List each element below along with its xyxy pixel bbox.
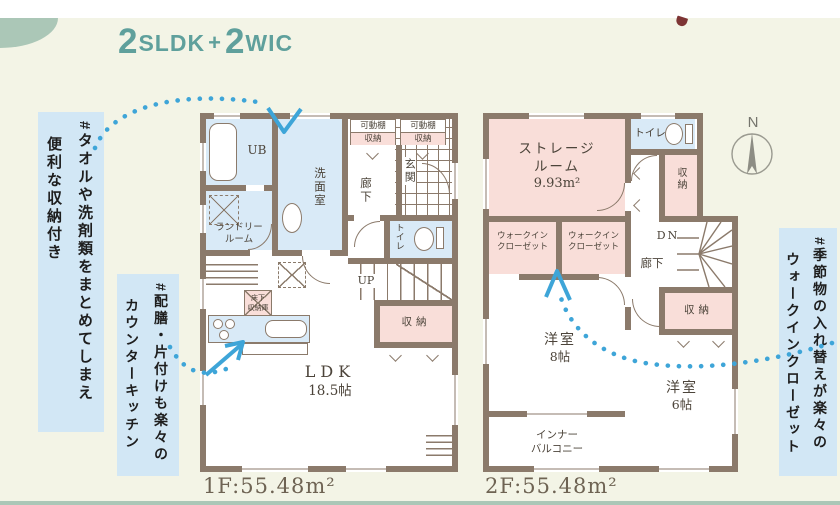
label-line: ストレージ bbox=[507, 141, 607, 159]
note-counter-kitchen: #配膳・片付けも楽々の カウンターキッチン bbox=[117, 274, 179, 476]
closet-mark bbox=[389, 349, 402, 362]
title-number: 2 bbox=[118, 22, 138, 61]
toilet-bowl-icon bbox=[665, 123, 683, 145]
window-marker bbox=[214, 113, 240, 119]
counter-front-panel bbox=[242, 343, 308, 355]
room-label-toilet: トイレ bbox=[392, 223, 404, 250]
closet-mark bbox=[366, 147, 379, 160]
label-line: バルコニー bbox=[517, 443, 597, 457]
room-label-closet-upper: 収納 bbox=[674, 167, 687, 191]
toilet-tank-icon bbox=[436, 227, 444, 249]
window-marker bbox=[534, 466, 599, 472]
note-line: #配膳・片付けも楽々の bbox=[146, 283, 175, 467]
door-arc bbox=[597, 277, 625, 305]
window-marker bbox=[732, 389, 738, 434]
shelf-label: 収納 bbox=[351, 133, 395, 145]
washer-icon bbox=[209, 195, 239, 225]
plus-sign: + bbox=[205, 30, 225, 55]
wall bbox=[659, 287, 732, 293]
door-arc bbox=[631, 155, 657, 181]
door-arc bbox=[354, 221, 380, 247]
label-line: 洋室 bbox=[642, 379, 722, 397]
shelf-label: 可動棚 bbox=[351, 120, 395, 133]
floor1-area-label: 1F:55.48m² bbox=[203, 474, 336, 498]
door-mark bbox=[633, 199, 646, 212]
room-label-laundry: ランドリー ルーム bbox=[206, 222, 272, 247]
sink-icon bbox=[282, 203, 302, 233]
bathtub-icon bbox=[209, 123, 237, 181]
label-line: 6帖 bbox=[642, 397, 722, 413]
room-label-wic-2: ウォークイン クローゼット bbox=[562, 231, 625, 253]
label-line: LDK bbox=[284, 362, 376, 383]
title-number-2: 2 bbox=[225, 22, 245, 61]
closet-mark bbox=[712, 335, 725, 348]
label-line: 洋室 bbox=[520, 331, 600, 349]
door-arc bbox=[632, 299, 660, 327]
window-marker bbox=[483, 319, 489, 364]
door-gap bbox=[250, 250, 272, 256]
stove-burner-icon bbox=[219, 330, 229, 340]
wall bbox=[272, 119, 278, 256]
compass-north-label: N bbox=[744, 114, 762, 131]
stairs-up-label: UP bbox=[352, 274, 380, 288]
window-marker bbox=[659, 466, 709, 472]
window-marker bbox=[527, 411, 587, 417]
decor-bottom-strip bbox=[0, 501, 840, 505]
room-label-room6: 洋室 6帖 bbox=[642, 379, 722, 413]
note-line: ウォークインクローゼット bbox=[779, 237, 806, 467]
window-marker bbox=[529, 113, 584, 119]
wall bbox=[625, 222, 631, 330]
toilet-tank-icon bbox=[685, 124, 693, 144]
label-line: ウォークイン bbox=[489, 231, 556, 242]
note-laundry-storage: #タオルや洗剤類をまとめてしまえ 便利な収納付き bbox=[38, 112, 104, 432]
shelf-label: 収納 bbox=[401, 133, 445, 145]
wall bbox=[659, 329, 732, 335]
label-line: 18.5帖 bbox=[284, 383, 376, 401]
wall bbox=[374, 300, 452, 306]
label-line: インナー bbox=[517, 429, 597, 443]
shelf-storage-box: 可動棚 収納 bbox=[400, 119, 446, 145]
title-unit-2: WIC bbox=[245, 30, 293, 56]
wall bbox=[374, 342, 452, 348]
closet-mark bbox=[677, 335, 690, 348]
label-line: 床下 bbox=[245, 293, 271, 303]
room-label-hall-2f: 廊下 bbox=[635, 256, 669, 271]
window-marker bbox=[242, 466, 308, 472]
label-line: ランドリー bbox=[206, 222, 272, 234]
room-label-toilet-2f: トイレ bbox=[634, 127, 666, 141]
room-label-ldk: LDK 18.5帖 bbox=[284, 362, 376, 400]
wall bbox=[659, 155, 665, 216]
page-title: 2SLDK+2WIC bbox=[118, 22, 293, 62]
label-line: ウォークイン bbox=[562, 231, 625, 242]
room-label-closet-lower: 収納 bbox=[665, 304, 732, 318]
shelf-storage-box: 可動棚 収納 bbox=[350, 119, 396, 145]
room-label-storage: 収納 bbox=[380, 316, 452, 330]
kitchen-counter bbox=[208, 315, 310, 343]
label-line: クローゼット bbox=[489, 242, 556, 253]
floor-plan-2f: ストレージ ルーム 9.93m² トイレ 収納 ウォークイン クローゼット ウォ… bbox=[483, 113, 738, 472]
note-line: カウンターキッチン bbox=[117, 283, 146, 467]
louver-lines bbox=[206, 264, 258, 290]
louver-lines bbox=[426, 435, 452, 461]
stairs-diagonal bbox=[396, 264, 452, 300]
room-label-room8: 洋室 8帖 bbox=[520, 331, 600, 365]
stove-burner-icon bbox=[213, 319, 223, 329]
kitchen-sink-icon bbox=[265, 320, 307, 338]
window-marker bbox=[200, 279, 206, 309]
label-line: 8帖 bbox=[520, 349, 600, 365]
room-label-ub: UB bbox=[242, 143, 272, 159]
label-line: 収納庫 bbox=[245, 303, 271, 313]
window-marker bbox=[452, 375, 458, 425]
refrigerator-space-icon bbox=[278, 262, 306, 288]
room-label-senmen: 洗面室 bbox=[312, 167, 327, 208]
floor-storage-label: 床下 収納庫 bbox=[245, 293, 271, 313]
room-label-balcony: インナー バルコニー bbox=[517, 429, 597, 456]
shelf-label: 可動棚 bbox=[401, 120, 445, 133]
door-gap bbox=[625, 183, 631, 211]
label-line: 9.93m² bbox=[507, 176, 607, 193]
compass-icon bbox=[727, 130, 777, 180]
wall bbox=[519, 274, 599, 280]
room-label-genkan: 玄関 bbox=[402, 157, 416, 185]
room-label-hall: 廊下 bbox=[358, 177, 373, 204]
stove-burner-icon bbox=[225, 319, 235, 329]
note-walk-in-closet: #季節物の入れ替えが楽々の ウォークインクローゼット bbox=[779, 228, 837, 476]
window-marker bbox=[641, 113, 675, 119]
closet-mark bbox=[426, 349, 439, 362]
window-marker bbox=[290, 113, 330, 119]
window-marker bbox=[483, 159, 489, 209]
toilet-bowl-icon bbox=[414, 227, 434, 251]
wall bbox=[631, 149, 703, 155]
label-line: ルーム bbox=[507, 159, 607, 177]
door-gap bbox=[354, 215, 380, 221]
note-line: #季節物の入れ替えが楽々の bbox=[806, 237, 833, 467]
floor-plan-1f: 床下 収納庫 可動棚 収納 可動棚 収納 UB 洗面室 ランドリー ルーム bbox=[200, 113, 458, 472]
label-line: クローゼット bbox=[562, 242, 625, 253]
door-gap bbox=[625, 277, 631, 307]
floor-storage-box: 床下 収納庫 bbox=[244, 290, 272, 316]
wall bbox=[384, 221, 390, 258]
door-arc bbox=[302, 256, 330, 284]
entrance-door-gap bbox=[452, 163, 458, 199]
stairs-down-label: DN bbox=[655, 229, 681, 243]
room-label-storage-room: ストレージ ルーム 9.93m² bbox=[507, 141, 607, 193]
room-label-wic-1: ウォークイン クローゼット bbox=[489, 231, 556, 253]
door-gap bbox=[246, 185, 264, 191]
wall bbox=[697, 113, 703, 222]
note-line: #タオルや洗剤類をまとめてしまえ bbox=[69, 121, 100, 423]
title-unit: SLDK bbox=[138, 30, 205, 56]
note-line: 便利な収納付き bbox=[38, 121, 69, 423]
window-marker bbox=[200, 371, 206, 405]
label-line: ルーム bbox=[206, 234, 272, 246]
window-marker bbox=[346, 466, 386, 472]
floor2-area-label: 2F:55.48m² bbox=[485, 474, 618, 498]
stairs-down-fan bbox=[677, 222, 732, 287]
wall bbox=[342, 119, 348, 256]
window-marker bbox=[200, 143, 206, 171]
